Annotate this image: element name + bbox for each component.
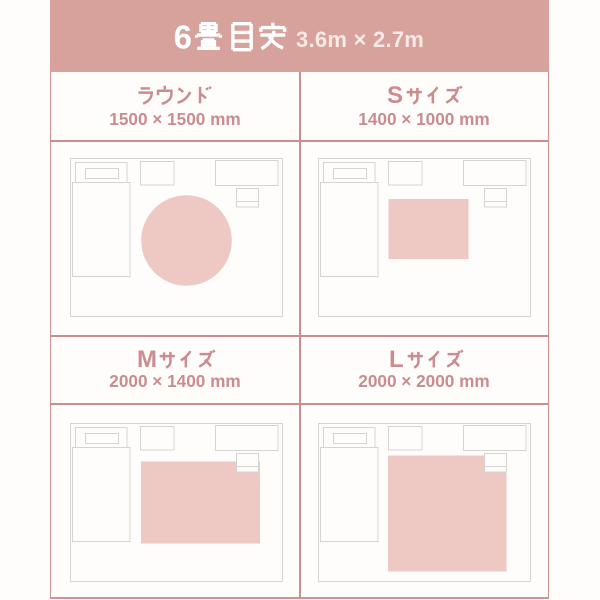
svg-text:S: S — [387, 85, 403, 105]
svg-text:3.6m × 2.7m: 3.6m × 2.7m — [296, 27, 424, 52]
svg-text:M: M — [137, 349, 157, 369]
svg-text:6: 6 — [174, 20, 192, 55]
svg-text:L: L — [389, 349, 404, 369]
